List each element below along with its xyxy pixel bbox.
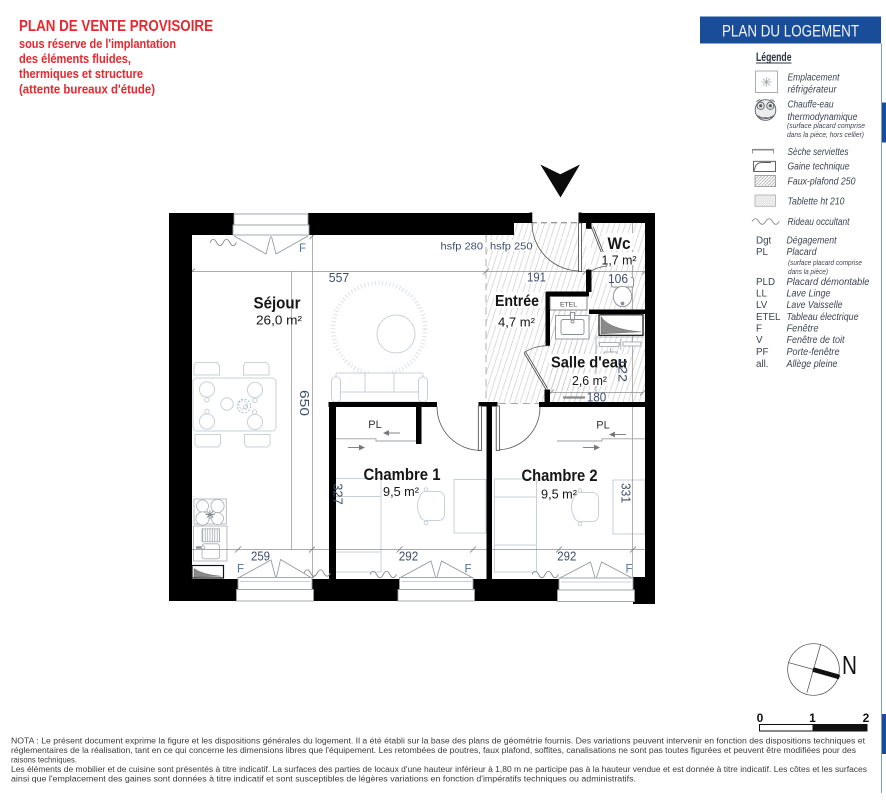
svg-text:180: 180 bbox=[587, 391, 607, 405]
svg-text:2: 2 bbox=[863, 711, 870, 725]
svg-text:Fenêtre de toit: Fenêtre de toit bbox=[787, 335, 846, 346]
svg-text:292: 292 bbox=[399, 550, 419, 564]
svg-text:Fenêtre: Fenêtre bbox=[787, 323, 820, 334]
svg-text:Wc: Wc bbox=[608, 235, 631, 253]
svg-text:raisons techniques.: raisons techniques. bbox=[11, 756, 77, 765]
svg-text:thermodynamique: thermodynamique bbox=[788, 112, 858, 123]
svg-text:Tableau électrique: Tableau électrique bbox=[787, 312, 859, 323]
svg-text:Dégagement: Dégagement bbox=[787, 236, 838, 247]
svg-text:Allège pleine: Allège pleine bbox=[786, 359, 838, 370]
svg-text:26,0 m²: 26,0 m² bbox=[256, 313, 303, 328]
svg-text:4,7 m²: 4,7 m² bbox=[498, 315, 536, 330]
svg-text:thermiques et structure: thermiques et structure bbox=[19, 67, 143, 81]
svg-text:F: F bbox=[299, 243, 306, 255]
svg-text:Sèche serviettes: Sèche serviettes bbox=[788, 147, 849, 158]
svg-text:dans la pièce): dans la pièce) bbox=[788, 269, 828, 276]
svg-text:Rideau occultant: Rideau occultant bbox=[788, 217, 851, 228]
svg-text:NOTA : Le présent document exp: NOTA : Le présent document exprime la fi… bbox=[11, 737, 866, 746]
svg-text:(attente bureaux d'étude): (attente bureaux d'étude) bbox=[19, 83, 155, 97]
svg-text:Les éléments de mobilier et de: Les éléments de mobilier et de cuisine s… bbox=[11, 765, 867, 774]
svg-text:0: 0 bbox=[757, 711, 764, 725]
svg-text:réfrigérateur: réfrigérateur bbox=[788, 85, 838, 96]
svg-text:V: V bbox=[756, 335, 763, 346]
svg-text:331: 331 bbox=[619, 483, 633, 503]
svg-text:2,6 m²: 2,6 m² bbox=[572, 373, 608, 388]
svg-text:F: F bbox=[756, 323, 762, 334]
svg-text:ETEL: ETEL bbox=[560, 302, 578, 308]
svg-text:292: 292 bbox=[557, 550, 576, 564]
svg-text:LV: LV bbox=[756, 300, 768, 311]
svg-text:259: 259 bbox=[251, 550, 270, 564]
svg-text:9,5 m²: 9,5 m² bbox=[541, 487, 578, 502]
svg-text:ainsi que l'emplacement des ga: ainsi que l'emplacement des gaines sont … bbox=[11, 775, 636, 784]
svg-text:1: 1 bbox=[809, 711, 816, 725]
svg-text:(surface placard comprise: (surface placard comprise bbox=[787, 123, 865, 130]
svg-text:Lave Linge: Lave Linge bbox=[787, 289, 832, 300]
svg-text:sous réserve de l'implantation: sous réserve de l'implantation bbox=[19, 37, 176, 51]
svg-text:9,5 m²: 9,5 m² bbox=[383, 484, 420, 499]
svg-text:1,7 m²: 1,7 m² bbox=[602, 253, 638, 268]
svg-text:Faux-plafond 250: Faux-plafond 250 bbox=[788, 177, 856, 188]
svg-text:327: 327 bbox=[331, 483, 345, 505]
svg-text:Chambre 2: Chambre 2 bbox=[522, 467, 598, 485]
svg-text:Gaine technique: Gaine technique bbox=[788, 162, 850, 173]
svg-text:Légende: Légende bbox=[756, 52, 792, 64]
svg-text:Séjour: Séjour bbox=[254, 295, 302, 313]
svg-text:all.: all. bbox=[756, 359, 769, 370]
svg-text:des éléments fluides,: des éléments fluides, bbox=[19, 52, 131, 66]
svg-text:Placard démontable: Placard démontable bbox=[787, 277, 871, 288]
svg-text:650: 650 bbox=[297, 390, 311, 416]
svg-text:PLAN DE VENTE PROVISOIRE: PLAN DE VENTE PROVISOIRE bbox=[19, 18, 213, 35]
svg-text:Tablette ht 210: Tablette ht 210 bbox=[788, 197, 845, 208]
svg-text:PLAN DU LOGEMENT: PLAN DU LOGEMENT bbox=[722, 22, 859, 41]
svg-text:191: 191 bbox=[527, 271, 546, 285]
svg-text:Chauffe-eau: Chauffe-eau bbox=[788, 100, 834, 111]
svg-text:PF: PF bbox=[756, 347, 769, 358]
svg-text:PL: PL bbox=[596, 420, 609, 432]
svg-text:ETEL: ETEL bbox=[756, 312, 781, 323]
svg-text:Chambre 1: Chambre 1 bbox=[364, 466, 441, 484]
svg-text:hsfp 250: hsfp 250 bbox=[490, 241, 533, 253]
svg-text:LL: LL bbox=[756, 289, 767, 300]
svg-text:557: 557 bbox=[329, 271, 350, 285]
svg-text:PL: PL bbox=[368, 419, 381, 431]
svg-text:PL: PL bbox=[756, 247, 769, 258]
svg-text:F: F bbox=[465, 564, 472, 576]
svg-text:F: F bbox=[626, 564, 633, 576]
svg-text:dans la pièce, hors cellier): dans la pièce, hors cellier) bbox=[787, 132, 864, 139]
svg-text:122: 122 bbox=[616, 358, 630, 382]
svg-text:F: F bbox=[237, 564, 244, 576]
svg-text:Lave Vaisselle: Lave Vaisselle bbox=[787, 300, 843, 311]
svg-text:Placard: Placard bbox=[787, 247, 817, 258]
svg-text:106: 106 bbox=[608, 272, 628, 286]
svg-text:réglementaires de la réalisati: réglementaires de la réalisation, tant e… bbox=[11, 746, 856, 755]
svg-text:hsfp 280: hsfp 280 bbox=[441, 241, 484, 253]
svg-text:Porte-fenêtre: Porte-fenêtre bbox=[787, 347, 841, 358]
svg-text:Dgt: Dgt bbox=[756, 236, 772, 247]
svg-text:(surface placard comprise: (surface placard comprise bbox=[788, 260, 862, 267]
svg-text:PLD: PLD bbox=[756, 277, 775, 288]
svg-text:Emplacement: Emplacement bbox=[788, 73, 841, 84]
svg-text:N: N bbox=[842, 650, 857, 680]
svg-text:Entrée: Entrée bbox=[495, 293, 539, 310]
